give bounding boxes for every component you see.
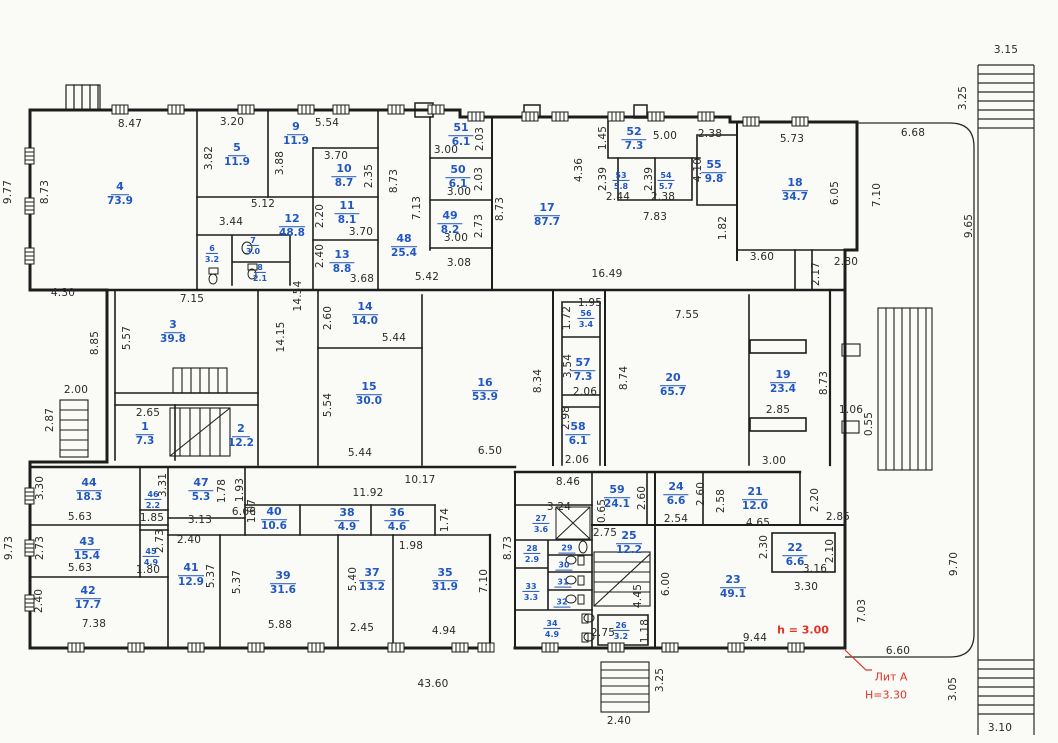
window-icon <box>552 112 568 121</box>
window-icon <box>792 117 808 126</box>
floor-plan: 473.9511.9911.9108.7118.11248.863.273.08… <box>0 0 1058 743</box>
window-icon <box>662 643 678 652</box>
stair-hall25 <box>594 552 650 606</box>
chimney <box>66 85 100 110</box>
stair-room2 <box>170 408 230 456</box>
window-icon <box>608 643 624 652</box>
toilet-icon <box>566 556 584 565</box>
window-icon <box>428 105 444 114</box>
window-icon <box>478 643 494 652</box>
stair-exterior-right <box>842 308 932 470</box>
window-icon <box>522 112 538 121</box>
shower-icon <box>556 507 590 539</box>
stair-exterior-left <box>60 400 88 457</box>
window-icon <box>25 248 34 264</box>
stair-exterior-bottom <box>601 662 649 712</box>
fixtures <box>209 242 594 642</box>
window-icon <box>25 488 34 504</box>
walls <box>30 85 857 648</box>
window-icon <box>333 105 349 114</box>
window-icon <box>452 643 468 652</box>
interior-walls-middle <box>115 290 830 465</box>
toilet-icon <box>566 595 584 604</box>
window-icon <box>248 643 264 652</box>
sink-icon <box>579 541 587 553</box>
window-icon <box>388 105 404 114</box>
window-icon <box>25 540 34 556</box>
window-icon <box>25 198 34 214</box>
interior-walls-bottom <box>30 468 845 648</box>
windows <box>25 105 808 652</box>
window-icon <box>298 105 314 114</box>
window-icon <box>25 595 34 611</box>
window-icon <box>168 105 184 114</box>
exterior-wall-left <box>30 290 490 648</box>
liter-leader-line <box>845 650 872 670</box>
window-icon <box>728 643 744 652</box>
interior-walls-top <box>197 110 845 290</box>
window-icon <box>468 112 484 121</box>
site-outlines <box>845 65 1034 735</box>
stair-room3 <box>173 368 227 393</box>
window-icon <box>128 643 144 652</box>
toilet-icon <box>248 264 257 279</box>
exterior-wall <box>30 110 857 648</box>
toilet-icon <box>566 576 584 585</box>
floor-plan-drawing <box>0 0 1058 743</box>
window-icon <box>648 112 664 121</box>
sink-icon <box>242 242 252 254</box>
window-icon <box>542 643 558 652</box>
window-icon <box>112 105 128 114</box>
window-icon <box>238 105 254 114</box>
window-icon <box>308 643 324 652</box>
window-icon <box>698 112 714 121</box>
toilet-icon <box>209 268 218 284</box>
window-icon <box>188 643 204 652</box>
window-icon <box>388 643 404 652</box>
window-icon <box>25 148 34 164</box>
window-icon <box>608 112 624 121</box>
window-icon <box>743 117 759 126</box>
sidewalk-strip <box>978 65 1034 735</box>
window-icon <box>788 643 804 652</box>
window-icon <box>68 643 84 652</box>
